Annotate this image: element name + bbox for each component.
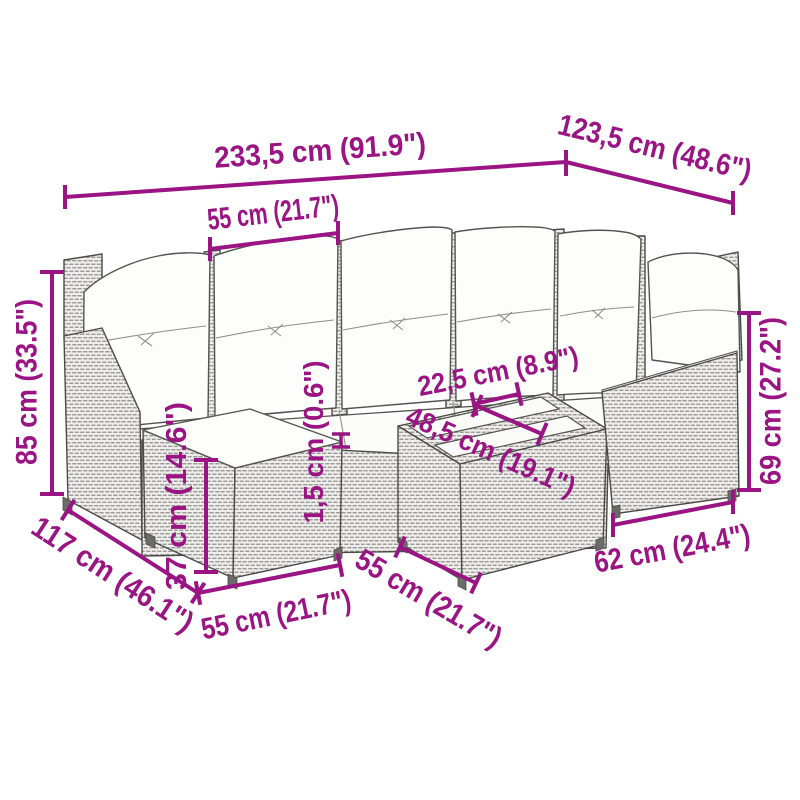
dimension-label: 123,5 cm (48.6") <box>555 108 755 187</box>
dimension-label: 85 cm (33.5") <box>11 299 44 465</box>
dimension-total-height: 85 cm (33.5") <box>11 272 65 494</box>
dimension-label: 1,5 cm (0.6") <box>298 361 329 524</box>
dimension-label: 55 cm (21.7") <box>198 584 354 647</box>
dimension-label: 233,5 cm (91.9") <box>213 127 427 175</box>
dimension-label: 62 cm (24.4") <box>591 518 752 579</box>
dimension-back-height: 69 cm (27.2") <box>737 313 788 490</box>
furniture-diagram-illustration: 233,5 cm (91.9") 123,5 cm (48.6") 55 cm … <box>0 0 800 800</box>
dimension-label: 37 cm (14.6") <box>161 402 193 590</box>
product-dimension-diagram: 233,5 cm (91.9") 123,5 cm (48.6") 55 cm … <box>0 0 800 800</box>
dimension-label: 55 cm (21.7") <box>206 189 341 237</box>
dimension-label: 69 cm (27.2") <box>755 317 788 485</box>
dimension-total-depth: 123,5 cm (48.6") <box>555 108 755 215</box>
